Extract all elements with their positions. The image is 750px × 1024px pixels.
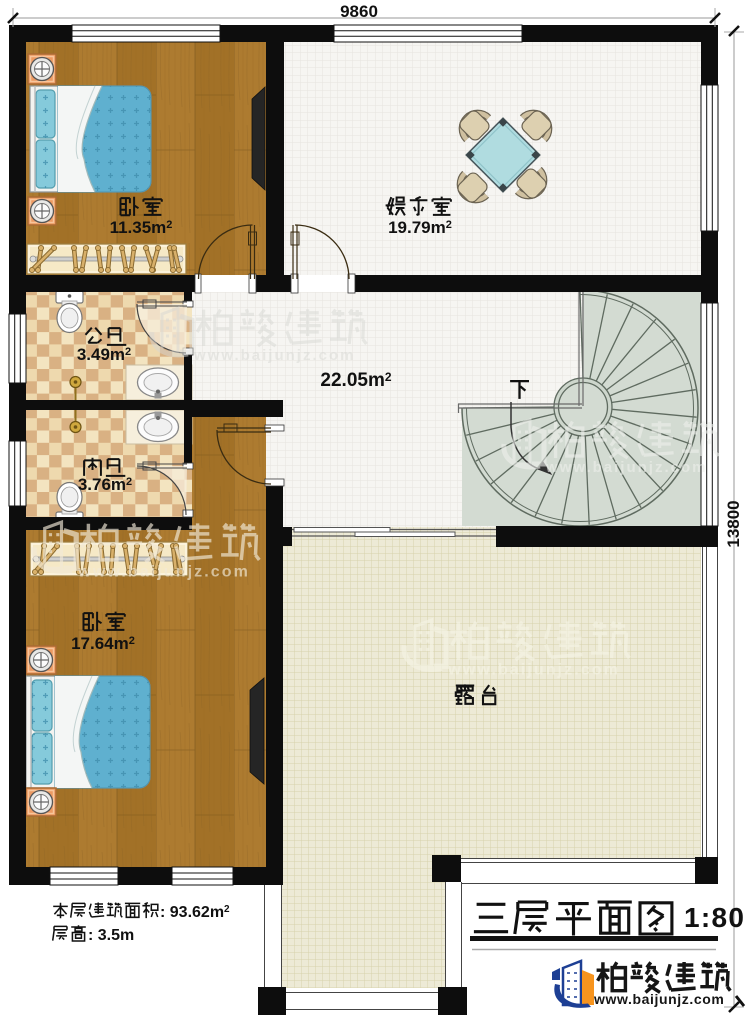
svg-text:11.35m2: 11.35m2	[110, 218, 173, 237]
svg-text:9860: 9860	[340, 2, 378, 21]
svg-text:www.baijunjz.com: www.baijunjz.com	[593, 991, 724, 1007]
svg-text:www.baijunjz.com: www.baijunjz.com	[447, 662, 620, 679]
svg-text:: 3.5m: : 3.5m	[88, 927, 134, 944]
svg-text:22.05m2: 22.05m2	[320, 370, 391, 391]
svg-text:1:80: 1:80	[684, 902, 744, 933]
svg-text:3.76m2: 3.76m2	[78, 475, 132, 494]
svg-text:www.baijunjz.com: www.baijunjz.com	[545, 459, 707, 476]
svg-text:19.79m2: 19.79m2	[388, 218, 452, 237]
svg-text:www.baijunjz.com: www.baijunjz.com	[77, 564, 250, 581]
svg-text:3.49m2: 3.49m2	[77, 345, 131, 364]
svg-text:13800: 13800	[724, 500, 743, 547]
svg-text:: 93.62m2: : 93.62m2	[160, 904, 230, 921]
svg-text:www.baijunjz.com: www.baijunjz.com	[193, 347, 355, 364]
svg-text:17.64m2: 17.64m2	[71, 634, 135, 653]
